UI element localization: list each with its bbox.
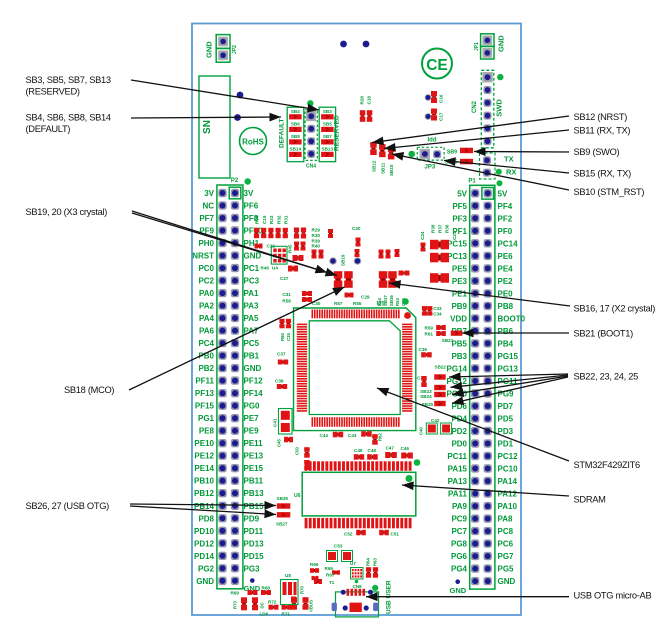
- svg-text:PG15: PG15: [498, 352, 519, 361]
- svg-text:R57: R57: [334, 301, 343, 306]
- svg-text:PD2: PD2: [451, 427, 467, 436]
- svg-text:SB7: SB7: [323, 134, 332, 139]
- svg-text:C52: C52: [344, 532, 353, 537]
- svg-text:R32: R32: [276, 215, 281, 224]
- svg-text:5V: 5V: [498, 189, 508, 198]
- svg-text:PE15: PE15: [244, 464, 264, 473]
- svg-text:C51: C51: [391, 532, 400, 537]
- svg-text:SB10: SB10: [389, 164, 394, 176]
- svg-text:PF3: PF3: [452, 214, 467, 223]
- svg-text:PG13: PG13: [498, 364, 519, 373]
- svg-text:PE14: PE14: [194, 464, 214, 473]
- svg-text:R70: R70: [300, 586, 305, 594]
- svg-text:PF13: PF13: [195, 389, 215, 398]
- svg-text:SB11 (RX, TX): SB11 (RX, TX): [574, 126, 631, 136]
- svg-text:PF5: PF5: [452, 202, 467, 211]
- svg-text:R67: R67: [326, 573, 335, 578]
- svg-text:PF14: PF14: [244, 389, 264, 398]
- svg-text:(RESERVED): (RESERVED): [26, 87, 80, 97]
- svg-text:C33: C33: [433, 306, 442, 311]
- svg-text:R66: R66: [310, 562, 319, 567]
- svg-text:3V: 3V: [204, 189, 214, 198]
- svg-text:GND: GND: [244, 252, 262, 261]
- svg-text:T1: T1: [329, 580, 335, 585]
- svg-text:R34: R34: [255, 215, 260, 224]
- svg-text:SB22, 23, 24, 25: SB22, 23, 24, 25: [574, 372, 639, 382]
- svg-text:R28: R28: [360, 96, 365, 105]
- svg-text:C47: C47: [386, 446, 395, 451]
- svg-text:PB6: PB6: [498, 327, 514, 336]
- svg-text:PC3: PC3: [244, 277, 260, 286]
- svg-text:R64: R64: [366, 558, 371, 566]
- svg-text:PB4: PB4: [498, 339, 514, 348]
- svg-text:PC9: PC9: [451, 515, 467, 524]
- svg-text:PD14: PD14: [194, 552, 215, 561]
- svg-text:R55: R55: [353, 301, 362, 306]
- svg-text:PF4: PF4: [498, 202, 513, 211]
- svg-text:JP3: JP3: [425, 165, 436, 171]
- svg-text:C31: C31: [282, 292, 291, 297]
- svg-text:PD0: PD0: [451, 440, 467, 449]
- svg-text:CN2: CN2: [472, 100, 478, 113]
- svg-text:C42: C42: [431, 418, 440, 423]
- svg-text:PB13: PB13: [244, 489, 265, 498]
- svg-text:JP2: JP2: [232, 45, 238, 54]
- svg-text:SB26: SB26: [277, 496, 289, 501]
- svg-text:SB6: SB6: [291, 122, 300, 127]
- svg-text:PG5: PG5: [498, 565, 515, 574]
- svg-text:C20: C20: [352, 226, 361, 231]
- svg-text:R46: R46: [261, 266, 270, 271]
- svg-text:SB16: SB16: [389, 295, 394, 306]
- svg-text:R68: R68: [262, 586, 271, 591]
- svg-text:NRST: NRST: [192, 252, 214, 261]
- svg-text:PG0: PG0: [244, 402, 261, 411]
- svg-text:C39: C39: [275, 379, 284, 384]
- svg-text:PD13: PD13: [244, 539, 265, 548]
- svg-text:C16: C16: [439, 94, 444, 103]
- svg-text:C19: C19: [262, 215, 267, 224]
- svg-text:GND: GND: [450, 586, 467, 595]
- svg-text:PC13: PC13: [447, 252, 468, 261]
- svg-text:R73: R73: [233, 601, 238, 609]
- svg-text:R39: R39: [312, 238, 321, 243]
- svg-text:SB12: SB12: [372, 160, 377, 172]
- svg-text:PC15: PC15: [447, 239, 468, 248]
- svg-text:PA4: PA4: [199, 314, 215, 323]
- svg-text:PE12: PE12: [194, 452, 214, 461]
- svg-text:R38: R38: [431, 224, 436, 233]
- svg-text:PA6: PA6: [199, 327, 215, 336]
- svg-text:R40: R40: [312, 244, 321, 249]
- svg-text:C44: C44: [320, 433, 329, 438]
- svg-text:PG4: PG4: [451, 565, 468, 574]
- svg-text:PD15: PD15: [244, 552, 265, 561]
- svg-text:PB1: PB1: [244, 352, 260, 361]
- svg-text:PF12: PF12: [244, 377, 264, 386]
- svg-text:SB21 (BOOT1): SB21 (BOOT1): [574, 329, 634, 339]
- svg-text:R31: R31: [284, 215, 289, 224]
- svg-text:PD10: PD10: [194, 527, 215, 536]
- svg-text:C27: C27: [280, 276, 289, 281]
- svg-text:R69: R69: [231, 591, 240, 596]
- svg-text:PA3: PA3: [244, 302, 260, 311]
- svg-text:CE: CE: [426, 57, 448, 74]
- svg-text:C49: C49: [354, 448, 363, 453]
- svg-text:R33: R33: [269, 215, 274, 224]
- svg-text:R65: R65: [325, 566, 334, 571]
- svg-text:RX: RX: [506, 168, 516, 177]
- svg-text:PG7: PG7: [498, 552, 515, 561]
- svg-text:PA0: PA0: [199, 289, 215, 298]
- svg-text:LD6: LD6: [260, 612, 269, 617]
- svg-text:PA8: PA8: [498, 515, 514, 524]
- svg-text:SB11: SB11: [380, 162, 385, 174]
- svg-text:PE7: PE7: [244, 414, 260, 423]
- svg-text:PD8: PD8: [198, 514, 214, 523]
- svg-text:GND: GND: [498, 577, 516, 586]
- svg-text:SB3, SB5, SB7, SB13: SB3, SB5, SB7, SB13: [26, 75, 111, 85]
- svg-text:SB9: SB9: [447, 149, 457, 155]
- svg-text:P1: P1: [468, 179, 476, 185]
- svg-text:PE10: PE10: [194, 439, 214, 448]
- svg-text:PG6: PG6: [451, 552, 468, 561]
- svg-text:C24: C24: [420, 231, 425, 240]
- svg-text:PF15: PF15: [195, 402, 215, 411]
- svg-text:PE5: PE5: [452, 264, 468, 273]
- svg-text:PC11: PC11: [447, 452, 467, 461]
- svg-text:SB3: SB3: [323, 109, 332, 114]
- svg-text:U6: U6: [294, 493, 301, 499]
- svg-text:PB9: PB9: [451, 302, 467, 311]
- svg-text:GND: GND: [196, 577, 214, 586]
- svg-text:C34: C34: [433, 312, 442, 317]
- svg-text:PB12: PB12: [194, 489, 215, 498]
- svg-text:PF0: PF0: [498, 227, 513, 236]
- svg-text:C37: C37: [277, 352, 286, 357]
- svg-text:R62: R62: [378, 433, 383, 441]
- svg-text:PA5: PA5: [244, 314, 260, 323]
- svg-text:PB15: PB15: [244, 502, 265, 511]
- svg-text:GND: GND: [497, 35, 506, 52]
- svg-text:DEFAULT: DEFAULT: [279, 118, 286, 148]
- svg-text:C48: C48: [368, 448, 377, 453]
- svg-text:PA13: PA13: [448, 477, 468, 486]
- svg-text:PD7: PD7: [498, 402, 514, 411]
- svg-text:PC2: PC2: [198, 277, 214, 286]
- svg-text:C21: C21: [452, 231, 457, 240]
- svg-text:SB8: SB8: [291, 134, 300, 139]
- svg-text:C40: C40: [419, 427, 424, 435]
- svg-text:PA2: PA2: [199, 302, 215, 311]
- svg-text:PA9: PA9: [452, 502, 468, 511]
- svg-text:PC10: PC10: [498, 465, 519, 474]
- svg-text:PC8: PC8: [498, 527, 514, 536]
- svg-text:PB10: PB10: [194, 477, 215, 486]
- svg-text:PD5: PD5: [498, 415, 514, 424]
- svg-text:PB11: PB11: [244, 477, 264, 486]
- svg-text:R45: R45: [288, 244, 293, 253]
- svg-text:PC4: PC4: [198, 339, 214, 348]
- svg-text:C53: C53: [334, 544, 343, 549]
- svg-text:SB24: SB24: [420, 394, 432, 399]
- svg-text:USB OTG micro-AB: USB OTG micro-AB: [574, 591, 652, 601]
- svg-text:STM32F429ZIT6: STM32F429ZIT6: [574, 460, 640, 470]
- svg-text:GND: GND: [244, 364, 262, 373]
- svg-text:RESERVED: RESERVED: [334, 115, 341, 151]
- svg-text:U7: U7: [350, 561, 356, 566]
- svg-text:SB21: SB21: [442, 338, 454, 343]
- svg-text:R36: R36: [445, 224, 450, 233]
- svg-text:SDRAM: SDRAM: [574, 495, 606, 505]
- svg-text:PE13: PE13: [244, 452, 264, 461]
- svg-text:Idd: Idd: [428, 138, 437, 144]
- svg-text:PE9: PE9: [244, 427, 260, 436]
- svg-text:PC7: PC7: [451, 527, 467, 536]
- svg-text:SB16, 17 (X2 crystal): SB16, 17 (X2 crystal): [574, 304, 656, 314]
- svg-text:C17: C17: [439, 112, 444, 121]
- svg-text:PC1: PC1: [244, 264, 260, 273]
- svg-text:PE6: PE6: [498, 252, 514, 261]
- svg-text:R53: R53: [395, 298, 400, 306]
- svg-text:SB5: SB5: [323, 122, 332, 127]
- svg-text:CN4: CN4: [306, 164, 316, 170]
- svg-text:U4: U4: [272, 266, 278, 271]
- svg-text:GND: GND: [205, 41, 214, 58]
- svg-text:PD12: PD12: [194, 539, 215, 548]
- svg-text:SN: SN: [202, 120, 213, 134]
- svg-text:C43: C43: [348, 433, 357, 438]
- svg-text:SB4, SB6, SB8, SB14: SB4, SB6, SB8, SB14: [26, 113, 111, 123]
- svg-text:R59: R59: [425, 326, 434, 331]
- svg-text:PA14: PA14: [498, 477, 518, 486]
- svg-text:BOOT0: BOOT0: [498, 314, 526, 323]
- svg-text:PA1: PA1: [244, 289, 260, 298]
- svg-text:PF6: PF6: [244, 202, 259, 211]
- svg-text:RoHS: RoHS: [242, 138, 264, 147]
- svg-text:SB18 (MCO): SB18 (MCO): [64, 385, 114, 395]
- svg-text:PG3: PG3: [244, 564, 261, 573]
- svg-text:PD9: PD9: [244, 514, 260, 523]
- svg-text:PC0: PC0: [198, 264, 214, 273]
- svg-text:VDD: VDD: [450, 314, 467, 323]
- svg-text:PE3: PE3: [452, 277, 468, 286]
- svg-text:C45: C45: [277, 439, 282, 447]
- svg-text:PG2: PG2: [198, 564, 215, 573]
- svg-text:3V: 3V: [244, 189, 254, 198]
- svg-text:PF11: PF11: [195, 377, 214, 386]
- svg-text:NC: NC: [202, 202, 214, 211]
- svg-text:R37: R37: [438, 224, 443, 233]
- svg-text:U8: U8: [285, 573, 291, 578]
- svg-text:PB2: PB2: [198, 364, 214, 373]
- svg-text:PB8: PB8: [498, 302, 514, 311]
- svg-text:5V: 5V: [457, 189, 467, 198]
- svg-text:JP1: JP1: [474, 42, 480, 51]
- svg-text:SB9 (SWO): SB9 (SWO): [574, 147, 620, 157]
- svg-text:PG8: PG8: [451, 540, 468, 549]
- svg-text:PG14: PG14: [447, 364, 468, 373]
- svg-text:P2: P2: [231, 178, 239, 184]
- svg-text:SB14: SB14: [290, 147, 302, 152]
- svg-text:C46: C46: [401, 446, 410, 451]
- svg-text:C41: C41: [273, 418, 278, 427]
- svg-text:PD1: PD1: [498, 440, 514, 449]
- svg-text:C29: C29: [361, 295, 370, 300]
- svg-text:C35: C35: [286, 333, 291, 341]
- svg-text:PH0: PH0: [198, 239, 214, 248]
- svg-text:DC: DC: [260, 602, 265, 608]
- svg-text:PF2: PF2: [498, 214, 513, 223]
- svg-text:PC12: PC12: [498, 452, 519, 461]
- svg-text:R60: R60: [280, 333, 285, 341]
- svg-text:TX: TX: [504, 155, 514, 164]
- svg-text:(DEFAULT): (DEFAULT): [26, 124, 71, 134]
- svg-text:PB3: PB3: [451, 352, 467, 361]
- svg-text:R58: R58: [282, 299, 291, 304]
- svg-text:SB25: SB25: [422, 402, 434, 407]
- svg-text:SWD: SWD: [495, 99, 504, 117]
- svg-text:SB4: SB4: [291, 109, 300, 114]
- svg-text:PG1: PG1: [198, 414, 215, 423]
- svg-text:PA11: PA11: [448, 490, 468, 499]
- svg-text:SB12 (NRST): SB12 (NRST): [574, 112, 628, 122]
- svg-text:PC6: PC6: [498, 540, 514, 549]
- svg-text:PE4: PE4: [498, 264, 514, 273]
- svg-text:C50: C50: [295, 447, 300, 455]
- svg-text:C36: C36: [419, 347, 428, 352]
- svg-text:PA10: PA10: [498, 502, 518, 511]
- svg-text:SB27: SB27: [276, 522, 288, 527]
- svg-text:PE11: PE11: [244, 439, 264, 448]
- svg-text:R63: R63: [373, 558, 378, 566]
- svg-text:R61: R61: [425, 332, 434, 337]
- svg-text:CN6: CN6: [353, 584, 363, 589]
- svg-text:PA15: PA15: [448, 465, 468, 474]
- svg-text:PE2: PE2: [498, 277, 514, 286]
- svg-text:U5: U5: [377, 301, 386, 308]
- svg-text:VBUS: VBUS: [309, 600, 314, 612]
- svg-text:R29: R29: [312, 228, 321, 233]
- svg-text:PC14: PC14: [498, 239, 519, 248]
- svg-text:SB13: SB13: [322, 147, 334, 152]
- svg-text:PF10: PF10: [244, 227, 264, 236]
- svg-text:C18: C18: [367, 96, 372, 105]
- svg-text:SB10 (STM_RST): SB10 (STM_RST): [574, 187, 645, 197]
- svg-text:PE8: PE8: [199, 427, 215, 436]
- svg-text:SB19, 20 (X3 crystal): SB19, 20 (X3 crystal): [26, 207, 108, 217]
- svg-text:PD11: PD11: [244, 527, 264, 536]
- svg-text:SB15 (RX, TX): SB15 (RX, TX): [574, 169, 632, 179]
- svg-text:PB5: PB5: [451, 339, 467, 348]
- svg-text:R72: R72: [268, 600, 277, 605]
- svg-text:R30: R30: [312, 233, 321, 238]
- svg-text:R71: R71: [282, 612, 291, 617]
- svg-text:SB22: SB22: [435, 364, 447, 369]
- svg-text:PF7: PF7: [199, 214, 214, 223]
- svg-text:PC5: PC5: [244, 339, 260, 348]
- svg-text:SB26, 27 (USB OTG): SB26, 27 (USB OTG): [26, 501, 110, 511]
- svg-text:SB19: SB19: [341, 254, 346, 266]
